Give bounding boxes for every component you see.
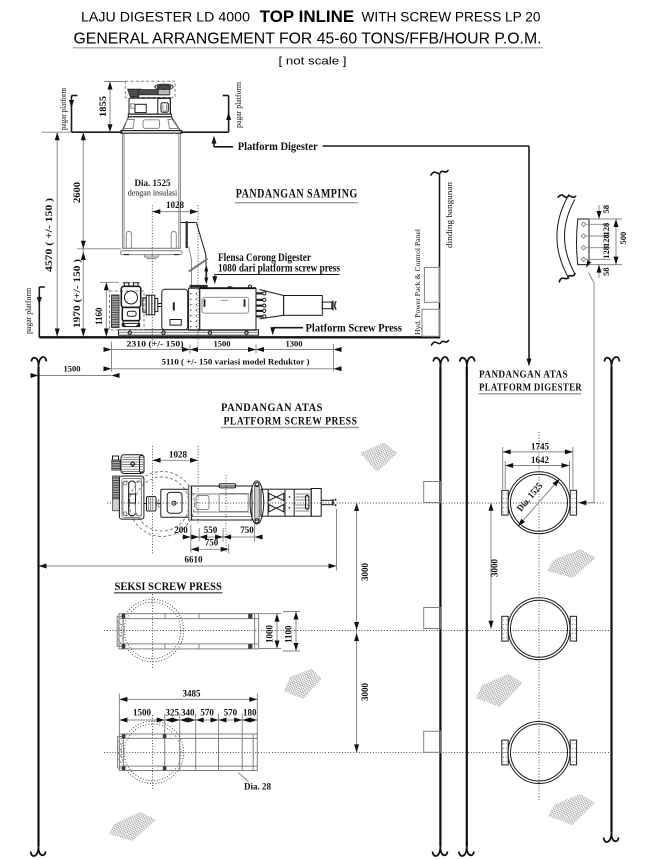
svg-text:750: 750 [205,538,219,548]
svg-text:Platform Screw Press: Platform Screw Press [306,323,403,335]
svg-text:58: 58 [601,268,611,277]
svg-text:200: 200 [174,525,188,535]
svg-text:2310 (+/- 150): 2310 (+/- 150) [127,339,184,349]
svg-text:dinding bangunan: dinding bangunan [445,182,454,248]
svg-text:pagar platform: pagar platform [24,287,33,334]
svg-text:SEKSI SCREW PRESS: SEKSI SCREW PRESS [115,581,222,593]
svg-text:325: 325 [165,708,179,718]
svg-text:58: 58 [601,205,611,214]
svg-text:PLATFORM SCREW PRESS: PLATFORM SCREW PRESS [224,414,358,428]
svg-text:PANDANGAN SAMPING: PANDANGAN SAMPING [236,187,358,201]
svg-text:1100: 1100 [284,625,294,643]
svg-text:Dia. 1525: Dia. 1525 [135,178,172,188]
svg-text:PANDANGAN ATAS: PANDANGAN ATAS [221,400,323,414]
svg-text:5110 ( +/- 150 variasi model: 5110 ( +/- 150 variasi model Reduktor ) [162,357,310,367]
svg-text:180: 180 [243,708,257,718]
svg-text:570: 570 [224,708,238,718]
svg-text:1028: 1028 [166,200,185,210]
svg-text:PANDANGAN ATAS: PANDANGAN ATAS [479,368,568,380]
svg-text:3000: 3000 [360,563,370,582]
svg-text:pagar platform: pagar platform [59,87,68,130]
svg-text:128: 128 [601,234,611,247]
svg-text:dengan insulasi: dengan insulasi [128,189,178,198]
svg-text:Platform Digester: Platform Digester [238,141,318,153]
svg-text:128: 128 [601,246,611,259]
svg-text:500: 500 [618,232,628,245]
svg-text:340: 340 [181,708,195,718]
svg-text:1745: 1745 [531,441,550,451]
svg-text:1300: 1300 [286,339,303,349]
svg-text:128: 128 [601,223,611,236]
svg-text:Dia. 28: Dia. 28 [244,782,272,792]
svg-text:750: 750 [240,525,254,535]
svg-text:1500: 1500 [214,339,231,349]
svg-text:3485: 3485 [183,689,202,699]
svg-text:pagar platform: pagar platform [234,81,243,128]
svg-text:PLATFORM DIGESTER: PLATFORM DIGESTER [479,381,583,393]
svg-text:3000: 3000 [360,683,370,702]
svg-text:1500: 1500 [133,708,152,718]
svg-text:1855: 1855 [98,95,108,117]
svg-text:1160: 1160 [94,307,104,325]
svg-text:Hyd. Power Pack & Control Pane: Hyd. Power Pack & Control Panel [413,229,422,335]
svg-text:TOP INLINE: TOP INLINE [260,8,355,26]
svg-text:1080 dari platform screw press: 1080 dari platform screw press [218,262,340,274]
svg-text:1500: 1500 [64,364,81,374]
svg-text:Dia. 1525: Dia. 1525 [516,481,546,514]
svg-text:LAJU DIGESTER LD 4000: LAJU DIGESTER LD 4000 [81,10,250,25]
svg-text:WITH SCREW PRESS LP 20: WITH SCREW PRESS LP 20 [362,10,541,25]
svg-text:[ not scale ]: [ not scale ] [279,56,347,68]
svg-text:4570 ( +/- 150 ): 4570 ( +/- 150 ) [44,198,54,272]
svg-text:2600: 2600 [72,181,82,203]
svg-text:1028: 1028 [169,450,188,460]
svg-text:3000: 3000 [490,559,500,578]
svg-text:1642: 1642 [531,455,550,465]
svg-text:1000: 1000 [265,625,275,644]
svg-text:6610: 6610 [185,555,204,565]
svg-text:GENERAL ARRANGEMENT FOR 45-60: GENERAL ARRANGEMENT FOR 45-60 TONS/FFB/H… [74,31,542,48]
svg-text:1970 (+/- 150 ): 1970 (+/- 150 ) [72,259,82,328]
svg-text:550: 550 [204,525,218,535]
svg-text:570: 570 [200,708,214,718]
